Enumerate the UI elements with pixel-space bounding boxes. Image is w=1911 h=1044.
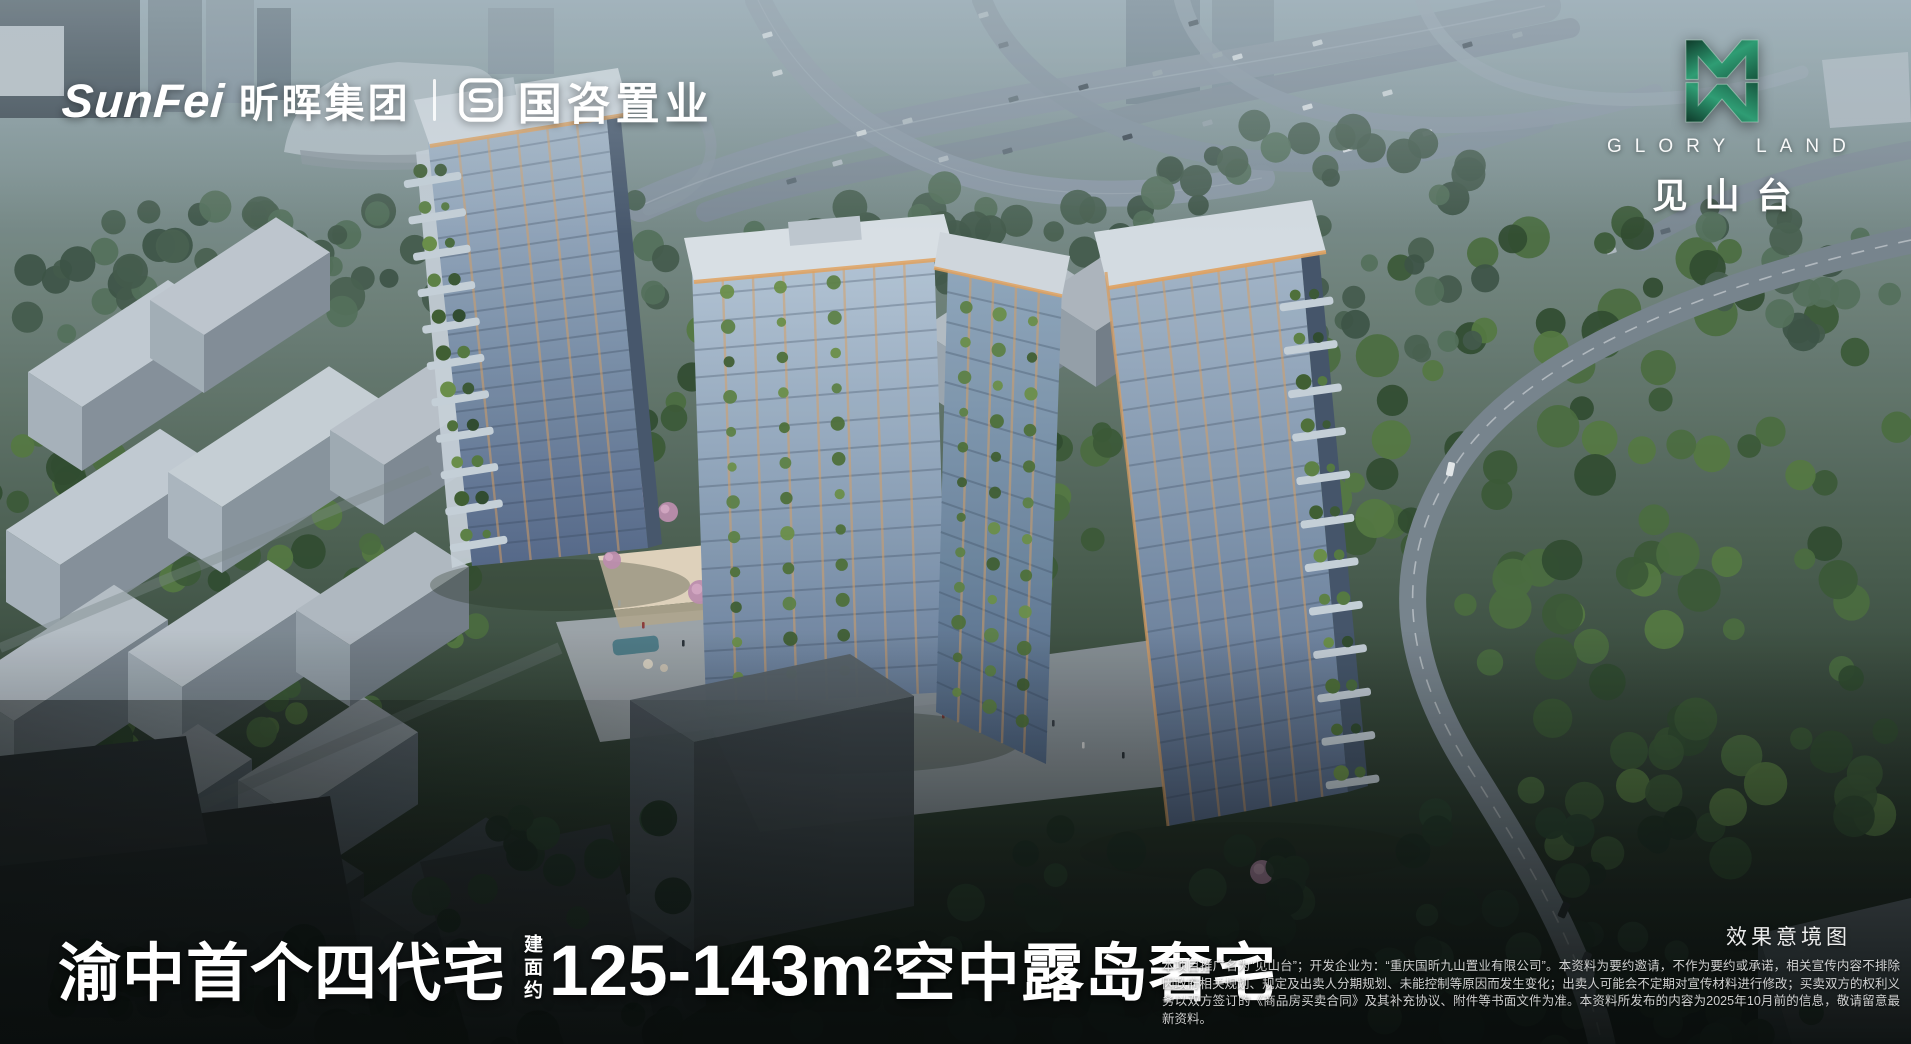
brand-lockup: SunFei 昕晖集团 国咨置业	[62, 68, 714, 132]
headline-area-exponent: 2	[873, 938, 893, 979]
project-name-en: GLORY LAND	[1594, 136, 1850, 158]
headline-area-number: 125-143m	[549, 932, 873, 1011]
partner-name: 国咨置业	[518, 68, 714, 132]
gloryland-mark-icon	[1681, 38, 1763, 124]
developer-name: 昕晖集团	[239, 71, 411, 129]
headline-prefix: 渝中首个四代宅	[58, 942, 506, 1006]
render-caption: 效果意境图	[1726, 921, 1851, 951]
sunfei-wordmark: SunFei	[60, 73, 227, 128]
disclaimer-text: 本项目推广名为“见山台”；开发企业为：“重庆国昕九山置业有限公司”。本资料为要约…	[1162, 958, 1900, 1028]
project-name-cn: 见山台	[1594, 168, 1850, 219]
headline-area-label: 建面约	[522, 934, 541, 1002]
headline-area-value: 125-143m2	[549, 939, 893, 1006]
poster-root: SunFei 昕晖集团 国咨置业 GLORY LAND 见山台 渝中首个四代宅 …	[0, 0, 1911, 1044]
brand-divider	[433, 79, 436, 121]
project-logo: GLORY LAND 见山台	[1594, 38, 1850, 219]
guozi-logo-icon	[458, 77, 504, 123]
headline: 渝中首个四代宅 建面约 125-143m2 空中露岛奢宅	[58, 934, 1277, 1006]
